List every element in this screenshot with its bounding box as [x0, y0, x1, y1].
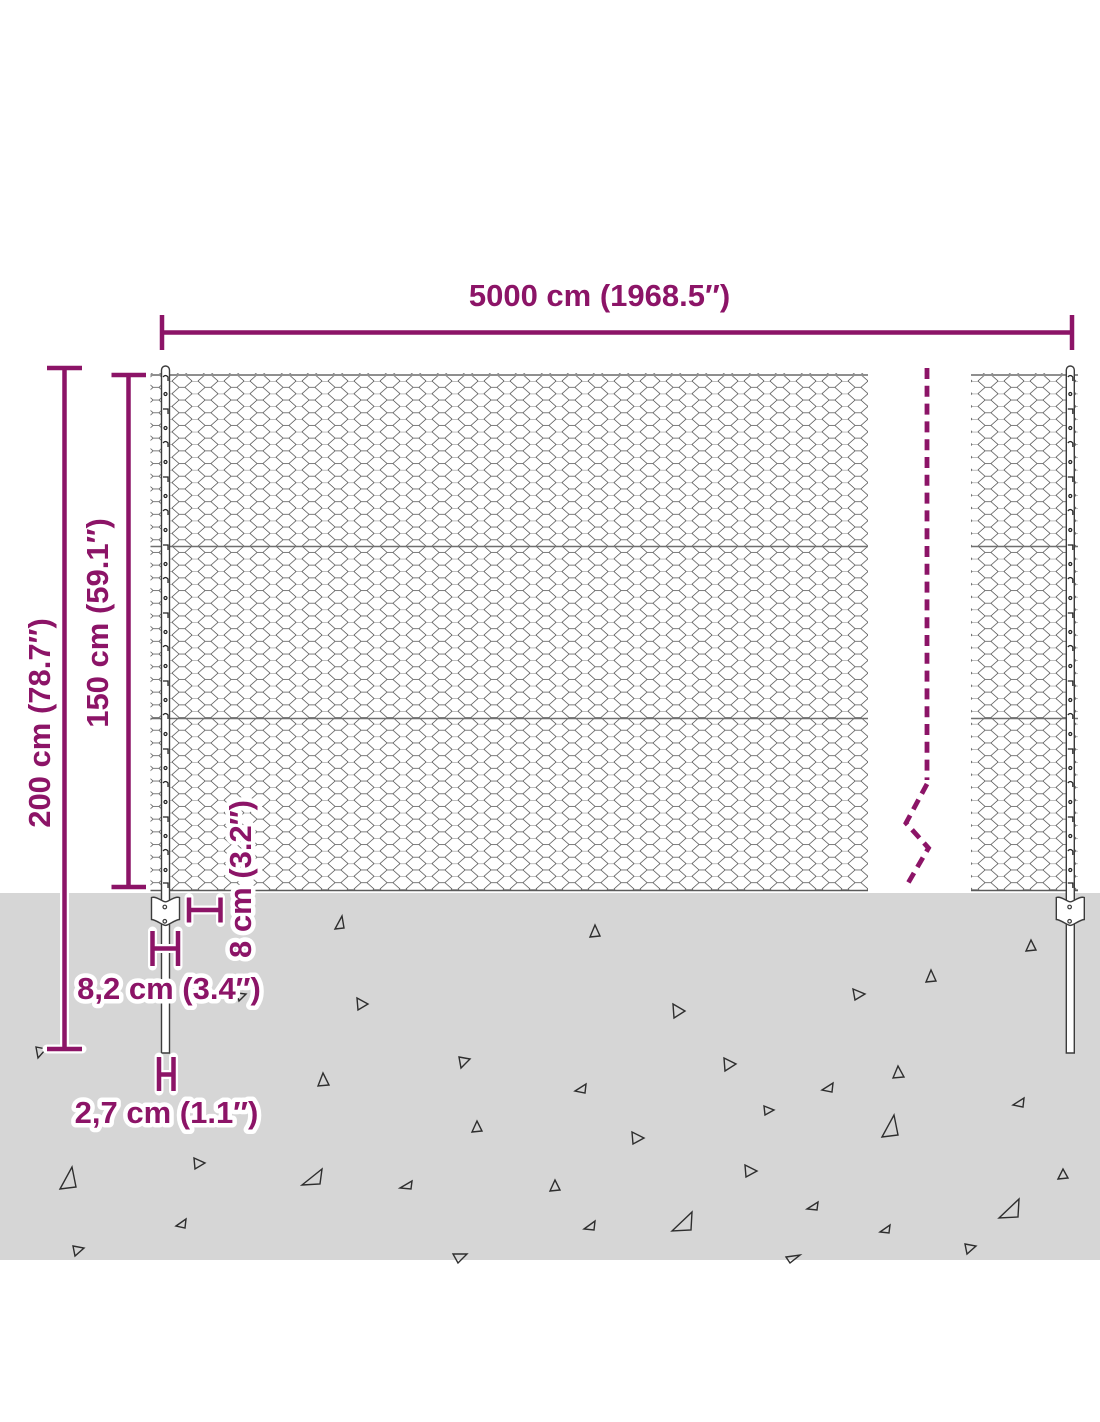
svg-text:8 cm (3.2″): 8 cm (3.2″): [223, 800, 258, 958]
svg-text:2,7 cm (1.1″): 2,7 cm (1.1″): [75, 1095, 259, 1130]
svg-text:8,2 cm (3.4″): 8,2 cm (3.4″): [77, 971, 261, 1006]
svg-text:200 cm (78.7″): 200 cm (78.7″): [22, 618, 57, 828]
svg-text:150 cm (59.1″): 150 cm (59.1″): [80, 518, 115, 728]
svg-text:5000 cm (1968.5″): 5000 cm (1968.5″): [469, 278, 730, 313]
